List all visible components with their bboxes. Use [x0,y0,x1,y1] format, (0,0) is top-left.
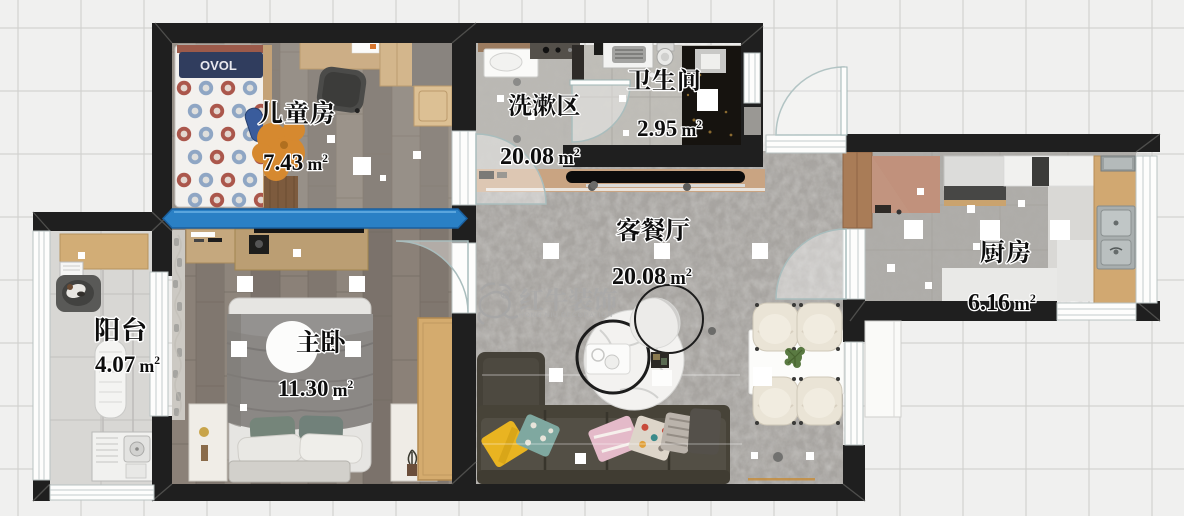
svg-text:HONG NIU DECORATION: HONG NIU DECORATION [519,312,613,319]
svg-text:20.08m2: 20.08m2 [612,264,692,290]
svg-text:11.30m2: 11.30m2 [278,376,353,401]
svg-text:6.16m2: 6.16m2 [968,290,1036,316]
svg-text:20.08m2: 20.08m2 [500,144,580,170]
svg-text:OVOL: OVOL [200,58,237,73]
svg-text:2.95m2: 2.95m2 [637,116,702,141]
svg-text:R: R [503,293,508,299]
svg-text:7.43m2: 7.43m2 [263,150,328,175]
svg-text:4.07m2: 4.07m2 [95,352,160,377]
